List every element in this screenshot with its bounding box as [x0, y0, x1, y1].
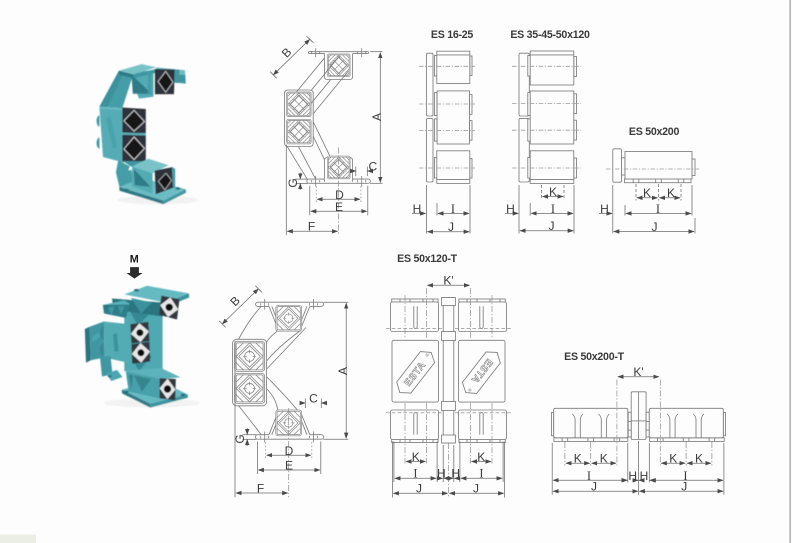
svg-text:C: C: [368, 160, 377, 174]
svg-text:F: F: [308, 220, 315, 234]
svg-text:ES 50x200-T: ES 50x200-T: [564, 351, 624, 363]
svg-text:A: A: [336, 367, 350, 375]
svg-text:I: I: [551, 202, 555, 216]
svg-text:H: H: [437, 467, 446, 481]
svg-text:A: A: [370, 113, 384, 121]
svg-text:ES 16-25: ES 16-25: [431, 29, 474, 41]
svg-text:K: K: [412, 450, 420, 464]
svg-text:E: E: [285, 459, 293, 473]
svg-text:H: H: [413, 202, 422, 216]
svg-text:G: G: [233, 434, 247, 443]
svg-text:K: K: [477, 450, 485, 464]
svg-text:ES 50x120-T: ES 50x120-T: [397, 253, 457, 265]
svg-text:C: C: [309, 392, 318, 406]
svg-text:E: E: [335, 200, 343, 214]
svg-text:H: H: [600, 202, 609, 216]
svg-text:J: J: [448, 220, 454, 234]
svg-text:J: J: [473, 482, 479, 496]
svg-text:H: H: [451, 467, 460, 481]
svg-text:K: K: [667, 186, 675, 200]
svg-text:K: K: [549, 185, 557, 199]
svg-text:H: H: [506, 202, 515, 216]
svg-text:J: J: [652, 220, 658, 234]
svg-text:H: H: [628, 469, 637, 483]
svg-text:D: D: [285, 444, 294, 458]
svg-text:K: K: [574, 452, 582, 466]
svg-text:H: H: [640, 469, 649, 483]
svg-text:ES 50x200: ES 50x200: [629, 126, 680, 138]
svg-text:K': K': [443, 274, 453, 288]
svg-text:I: I: [451, 202, 455, 216]
svg-text:K': K': [633, 365, 643, 379]
svg-text:J: J: [416, 482, 422, 496]
svg-text:M: M: [130, 254, 139, 266]
svg-text:K: K: [643, 186, 651, 200]
svg-text:K: K: [669, 452, 677, 466]
svg-text:K: K: [695, 452, 703, 466]
svg-text:K: K: [600, 452, 608, 466]
svg-text:J: J: [681, 480, 687, 494]
svg-text:G: G: [286, 178, 300, 187]
svg-text:F: F: [257, 482, 264, 496]
svg-text:I: I: [413, 467, 417, 481]
svg-text:J: J: [549, 219, 555, 233]
svg-text:J: J: [591, 480, 597, 494]
svg-text:ES 35-45-50x120: ES 35-45-50x120: [510, 29, 590, 41]
svg-text:I: I: [656, 202, 660, 216]
svg-text:I: I: [479, 467, 483, 481]
